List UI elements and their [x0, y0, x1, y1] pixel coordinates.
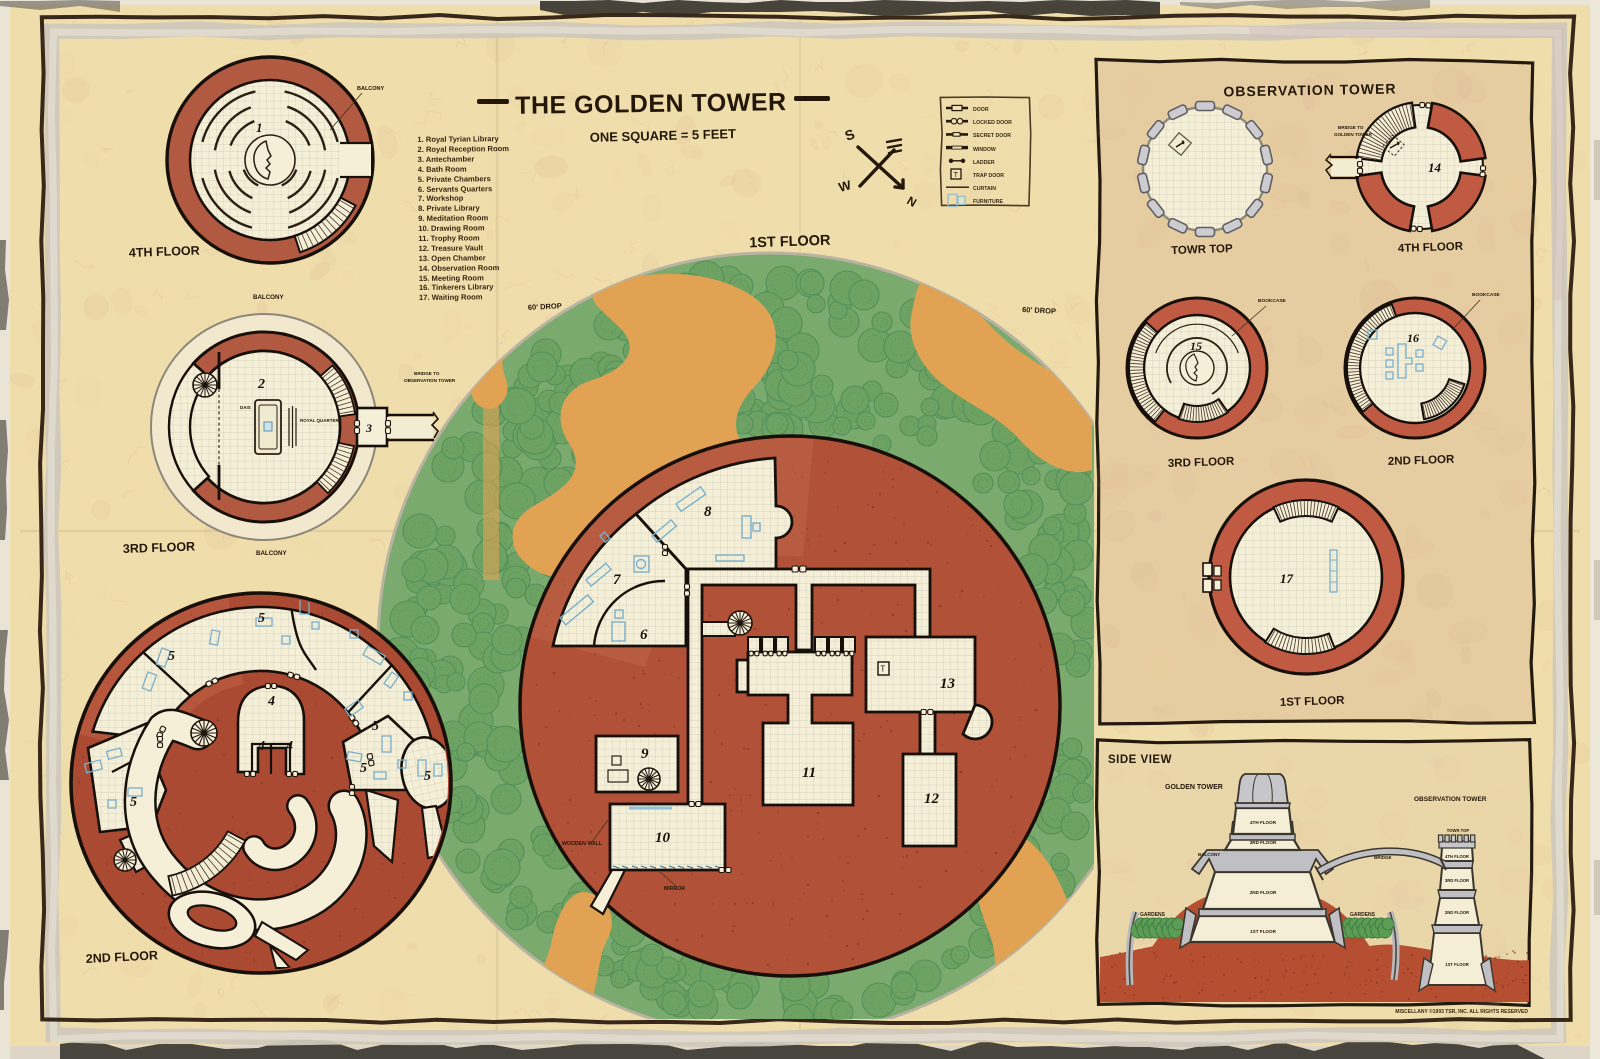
svg-text:3: 3	[365, 421, 372, 435]
svg-text:5: 5	[360, 761, 367, 776]
svg-text:WINDOW: WINDOW	[973, 147, 996, 153]
svg-text:5: 5	[372, 719, 379, 734]
svg-text:BRIDGE TO: BRIDGE TO	[1338, 125, 1364, 130]
svg-text:BALCONY: BALCONY	[256, 550, 287, 557]
svg-text:OBSERVATION TOWER: OBSERVATION TOWER	[404, 378, 456, 383]
svg-text:4: 4	[257, 739, 265, 754]
svg-text:DOOR: DOOR	[973, 107, 989, 113]
svg-text:BRIDGE TO: BRIDGE TO	[414, 371, 440, 376]
svg-text:4TH FLOOR: 4TH FLOOR	[1445, 854, 1469, 859]
svg-text:1ST FLOOR: 1ST FLOOR	[749, 233, 831, 252]
svg-text:1ST FLOOR: 1ST FLOOR	[1250, 929, 1276, 934]
svg-text:13. Open Chamber: 13. Open Chamber	[419, 253, 486, 263]
svg-text:10. Drawing Room: 10. Drawing Room	[418, 223, 485, 233]
svg-text:14. Observation Room: 14. Observation Room	[419, 263, 500, 273]
svg-text:60′ DROP: 60′ DROP	[1022, 305, 1056, 316]
svg-text:BOOKCASE: BOOKCASE	[1258, 298, 1287, 304]
svg-text:BALCONY: BALCONY	[1198, 852, 1220, 857]
svg-text:MIRROR: MIRROR	[664, 886, 685, 892]
svg-text:OBSERVATION TOWER: OBSERVATION TOWER	[1223, 80, 1396, 99]
svg-text:OBSERVATION TOWER: OBSERVATION TOWER	[1414, 796, 1487, 803]
svg-text:11. Trophy Room: 11. Trophy Room	[418, 233, 480, 243]
svg-text:4TH FLOOR: 4TH FLOOR	[1398, 241, 1464, 255]
svg-text:GARDENS: GARDENS	[1140, 912, 1166, 918]
svg-text:6: 6	[640, 627, 648, 643]
svg-text:5: 5	[168, 649, 175, 664]
svg-text:3. Antechamber: 3. Antechamber	[418, 154, 475, 164]
svg-text:GARDENS: GARDENS	[1350, 912, 1376, 918]
svg-text:5: 5	[258, 611, 265, 626]
svg-text:MISCELLANY ©1993 TSR, INC. A: MISCELLANY ©1993 TSR, INC. ALL RIGHTS RE…	[1395, 1008, 1528, 1015]
svg-text:GOLDEN TOWER: GOLDEN TOWER	[1334, 132, 1373, 137]
svg-text:2: 2	[257, 377, 265, 392]
svg-text:BALCONY: BALCONY	[357, 86, 385, 92]
svg-text:2. Royal Reception Room: 2. Royal Reception Room	[417, 144, 509, 154]
svg-text:7: 7	[613, 572, 621, 588]
svg-text:BOOKCASE: BOOKCASE	[1472, 292, 1501, 298]
svg-text:9. Meditation Room: 9. Meditation Room	[418, 213, 488, 223]
svg-text:1ST FLOOR: 1ST FLOOR	[1280, 695, 1346, 709]
svg-text:5. Private Chambers: 5. Private Chambers	[418, 174, 491, 184]
svg-text:13: 13	[940, 676, 956, 692]
svg-text:THE GOLDEN TOWER: THE GOLDEN TOWER	[515, 88, 787, 120]
svg-text:4TH FLOOR: 4TH FLOOR	[1250, 820, 1277, 825]
svg-text:8: 8	[704, 504, 712, 520]
svg-text:1: 1	[256, 120, 263, 135]
svg-text:3RD FLOOR: 3RD FLOOR	[1250, 840, 1277, 845]
svg-text:3RD FLOOR: 3RD FLOOR	[1445, 878, 1469, 883]
svg-text:4: 4	[285, 739, 293, 754]
svg-text:3RD FLOOR: 3RD FLOOR	[123, 539, 196, 556]
svg-text:16. Tinkerers Library: 16. Tinkerers Library	[419, 282, 494, 292]
svg-text:8. Private Library: 8. Private Library	[418, 203, 480, 213]
svg-text:12. Treasure Vault: 12. Treasure Vault	[418, 243, 483, 253]
svg-text:CURTAIN: CURTAIN	[973, 186, 996, 192]
svg-text:LOCKED DOOR: LOCKED DOOR	[973, 120, 1012, 126]
svg-text:7. Workshop: 7. Workshop	[418, 194, 464, 203]
svg-text:5: 5	[424, 769, 431, 784]
svg-text:FURNITURE: FURNITURE	[973, 199, 1004, 205]
svg-text:2ND FLOOR: 2ND FLOOR	[1250, 890, 1277, 895]
svg-text:1. Royal Tyrian Library: 1. Royal Tyrian Library	[417, 134, 499, 144]
svg-text:WOODEN WALL: WOODEN WALL	[562, 841, 603, 847]
svg-text:ROYAL QUARTERS: ROYAL QUARTERS	[300, 418, 342, 423]
svg-text:9: 9	[641, 746, 649, 762]
svg-text:17: 17	[1280, 571, 1294, 586]
svg-text:T: T	[954, 172, 959, 179]
svg-text:BRIDGE: BRIDGE	[1374, 855, 1392, 860]
svg-text:11: 11	[802, 765, 816, 781]
svg-text:3RD FLOOR: 3RD FLOOR	[1168, 456, 1236, 470]
svg-text:4. Bath Room: 4. Bath Room	[418, 165, 467, 175]
svg-text:12: 12	[924, 791, 940, 807]
svg-text:SIDE VIEW: SIDE VIEW	[1108, 754, 1172, 766]
svg-text:2ND FLOOR: 2ND FLOOR	[1445, 910, 1469, 915]
svg-text:BALCONY: BALCONY	[253, 294, 284, 301]
svg-text:TRAP DOOR: TRAP DOOR	[973, 173, 1004, 179]
svg-text:1ST FLOOR: 1ST FLOOR	[1445, 962, 1469, 967]
svg-text:14: 14	[1428, 160, 1442, 175]
svg-text:4: 4	[267, 694, 275, 709]
svg-text:DAIS: DAIS	[240, 405, 251, 410]
svg-text:6. Servants Quarters: 6. Servants Quarters	[418, 184, 492, 194]
svg-text:TOWR TOP: TOWR TOP	[1171, 243, 1233, 257]
svg-text:T: T	[880, 665, 885, 674]
svg-text:5: 5	[130, 795, 137, 810]
svg-text:17. Waiting Room: 17. Waiting Room	[419, 292, 483, 302]
svg-text:TOWR TOP: TOWR TOP	[1447, 828, 1470, 833]
svg-text:GOLDEN TOWER: GOLDEN TOWER	[1165, 784, 1223, 791]
svg-text:10: 10	[655, 830, 671, 846]
svg-text:SECRET DOOR: SECRET DOOR	[973, 133, 1011, 139]
svg-text:15: 15	[1190, 339, 1202, 353]
svg-text:16: 16	[1407, 331, 1419, 345]
svg-text:LADDER: LADDER	[973, 160, 995, 166]
svg-text:4TH FLOOR: 4TH FLOOR	[129, 244, 200, 260]
svg-text:2ND FLOOR: 2ND FLOOR	[1388, 454, 1456, 468]
svg-text:60′ DROP: 60′ DROP	[528, 301, 562, 312]
